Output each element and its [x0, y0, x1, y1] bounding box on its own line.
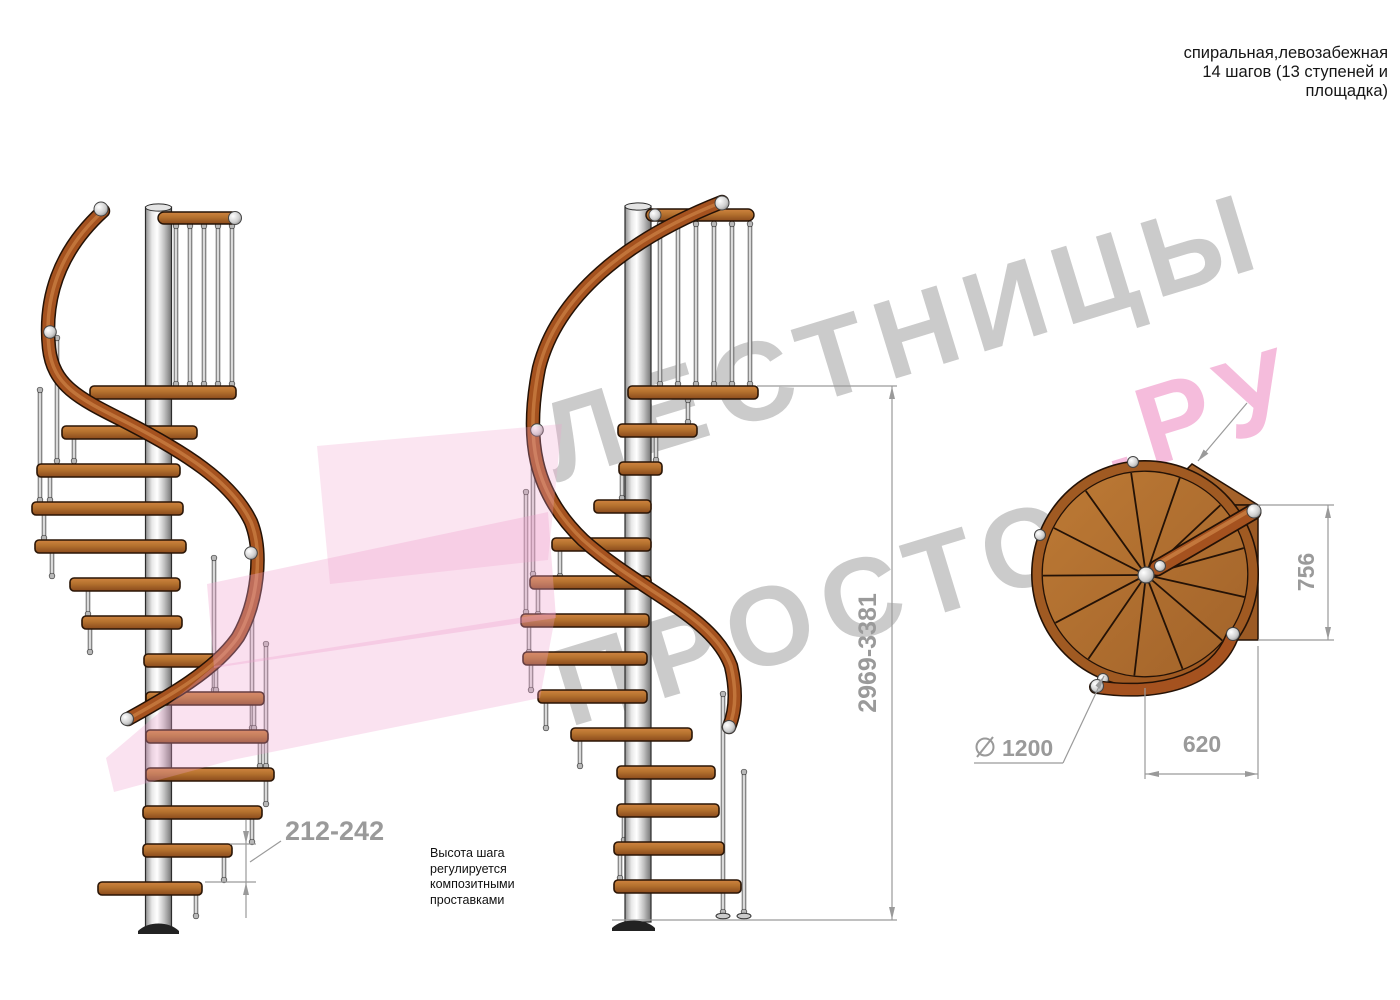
total-height-label: 2969-3381	[854, 593, 882, 713]
baluster-collar	[193, 913, 199, 919]
rail-joint-ball	[649, 209, 661, 221]
handrail-top-cap	[715, 196, 729, 210]
tread	[618, 424, 697, 437]
title-line: 14 шагов (13 ступеней и	[1202, 63, 1388, 81]
handrail-bottom-cap	[723, 721, 736, 734]
tread	[32, 502, 183, 515]
baluster	[676, 222, 680, 386]
center-pole-plan	[1138, 567, 1154, 583]
step-height-label: 212-242	[285, 816, 384, 846]
note-line: проставками	[430, 893, 515, 909]
baluster-collar	[741, 769, 747, 775]
tread	[619, 462, 662, 475]
step-height-note: Высота шага регулируется композитными пр…	[430, 846, 515, 908]
baluster-collar	[543, 725, 549, 731]
baluster	[742, 770, 746, 914]
baluster	[730, 222, 734, 386]
baluster	[188, 224, 192, 386]
arrowhead-icon	[889, 387, 895, 400]
rim-connector-ball	[1128, 457, 1139, 468]
watermark-arrow	[106, 424, 562, 792]
baluster-collar	[87, 649, 93, 655]
side-view-right	[521, 196, 758, 931]
dimension-diameter: 1200	[974, 676, 1104, 763]
handrail-joint	[44, 326, 57, 339]
tread-sector-line	[1043, 575, 1146, 576]
rail-ball	[1227, 628, 1240, 641]
side-view-left	[32, 202, 274, 934]
baluster-collar	[693, 221, 699, 227]
platform-leader	[1198, 403, 1247, 461]
drawing-title: спиральная,левозабежная 14 шагов (13 сту…	[1184, 44, 1388, 101]
handrail-joint	[245, 547, 258, 560]
baluster-collar	[211, 555, 217, 561]
tread	[617, 766, 715, 779]
baluster-collar	[720, 691, 726, 697]
dimension-platform-depth: 756	[1258, 505, 1334, 640]
tread	[538, 690, 647, 703]
baluster-collar	[54, 458, 60, 464]
handrail-bottom-cap	[121, 713, 134, 726]
tread	[571, 728, 692, 741]
baluster-collar	[577, 763, 583, 769]
baluster	[694, 222, 698, 386]
pole-top-cap	[625, 203, 651, 210]
pole-base	[138, 924, 179, 935]
drawing-canvas: ЛЕСТНИЦЫ ПРОСТО .РУ	[0, 0, 1400, 1000]
baluster-collar	[729, 221, 735, 227]
tread	[35, 540, 186, 553]
baluster-collar	[37, 387, 43, 393]
top-view-plan	[1032, 457, 1261, 693]
handrail-top-cap	[94, 202, 108, 216]
tread	[98, 882, 202, 895]
baluster-foot	[737, 913, 751, 919]
title-line: площадка)	[1305, 82, 1388, 100]
center-pole	[146, 207, 172, 930]
tread	[37, 464, 180, 477]
baluster-collar	[711, 221, 717, 227]
baluster	[174, 224, 178, 386]
tread	[594, 500, 651, 513]
arrowhead-icon	[889, 907, 895, 920]
arrowhead-icon	[243, 883, 249, 896]
rim-connector-ball	[1035, 530, 1046, 541]
tread	[614, 842, 724, 855]
arrowhead-icon	[243, 831, 249, 844]
staircase-drawing: 2969-3381 212-242 756	[0, 0, 1400, 1000]
top-guardrail	[158, 212, 238, 224]
baluster	[202, 224, 206, 386]
title-line: спиральная,левозабежная	[1184, 44, 1388, 62]
tread	[143, 806, 262, 819]
baluster	[658, 222, 662, 386]
baluster-collar	[71, 458, 77, 464]
baluster	[230, 224, 234, 386]
pole-top-cap	[146, 204, 172, 211]
tube-end-cap	[1247, 504, 1261, 518]
baluster	[712, 222, 716, 386]
rail-end-cap	[229, 212, 242, 225]
baluster-collar	[747, 221, 753, 227]
diameter-label: 1200	[1002, 735, 1053, 761]
tread	[143, 844, 232, 857]
tread	[82, 616, 182, 629]
note-line: композитными	[430, 877, 515, 893]
baluster	[38, 388, 42, 502]
tread	[90, 386, 236, 399]
platform-depth-label: 756	[1293, 553, 1319, 591]
tread	[70, 578, 180, 591]
arrowhead-icon	[1325, 506, 1331, 519]
platform-width-label: 620	[1183, 731, 1221, 757]
note-line: Высота шага	[430, 846, 515, 862]
arrowhead-icon	[1245, 771, 1258, 777]
tread	[614, 880, 741, 893]
dimension-step-height: 212-242	[205, 816, 384, 918]
baluster-collar	[49, 573, 55, 579]
tread	[628, 386, 758, 399]
tube-joint	[1155, 561, 1166, 572]
baluster	[748, 222, 752, 386]
tread	[617, 804, 719, 817]
arrowhead-icon	[1325, 627, 1331, 640]
note-line: регулируется	[430, 862, 515, 878]
arrowhead-icon	[1146, 771, 1159, 777]
baluster-collar	[263, 801, 269, 807]
baluster	[216, 224, 220, 386]
baluster-foot	[716, 913, 730, 919]
